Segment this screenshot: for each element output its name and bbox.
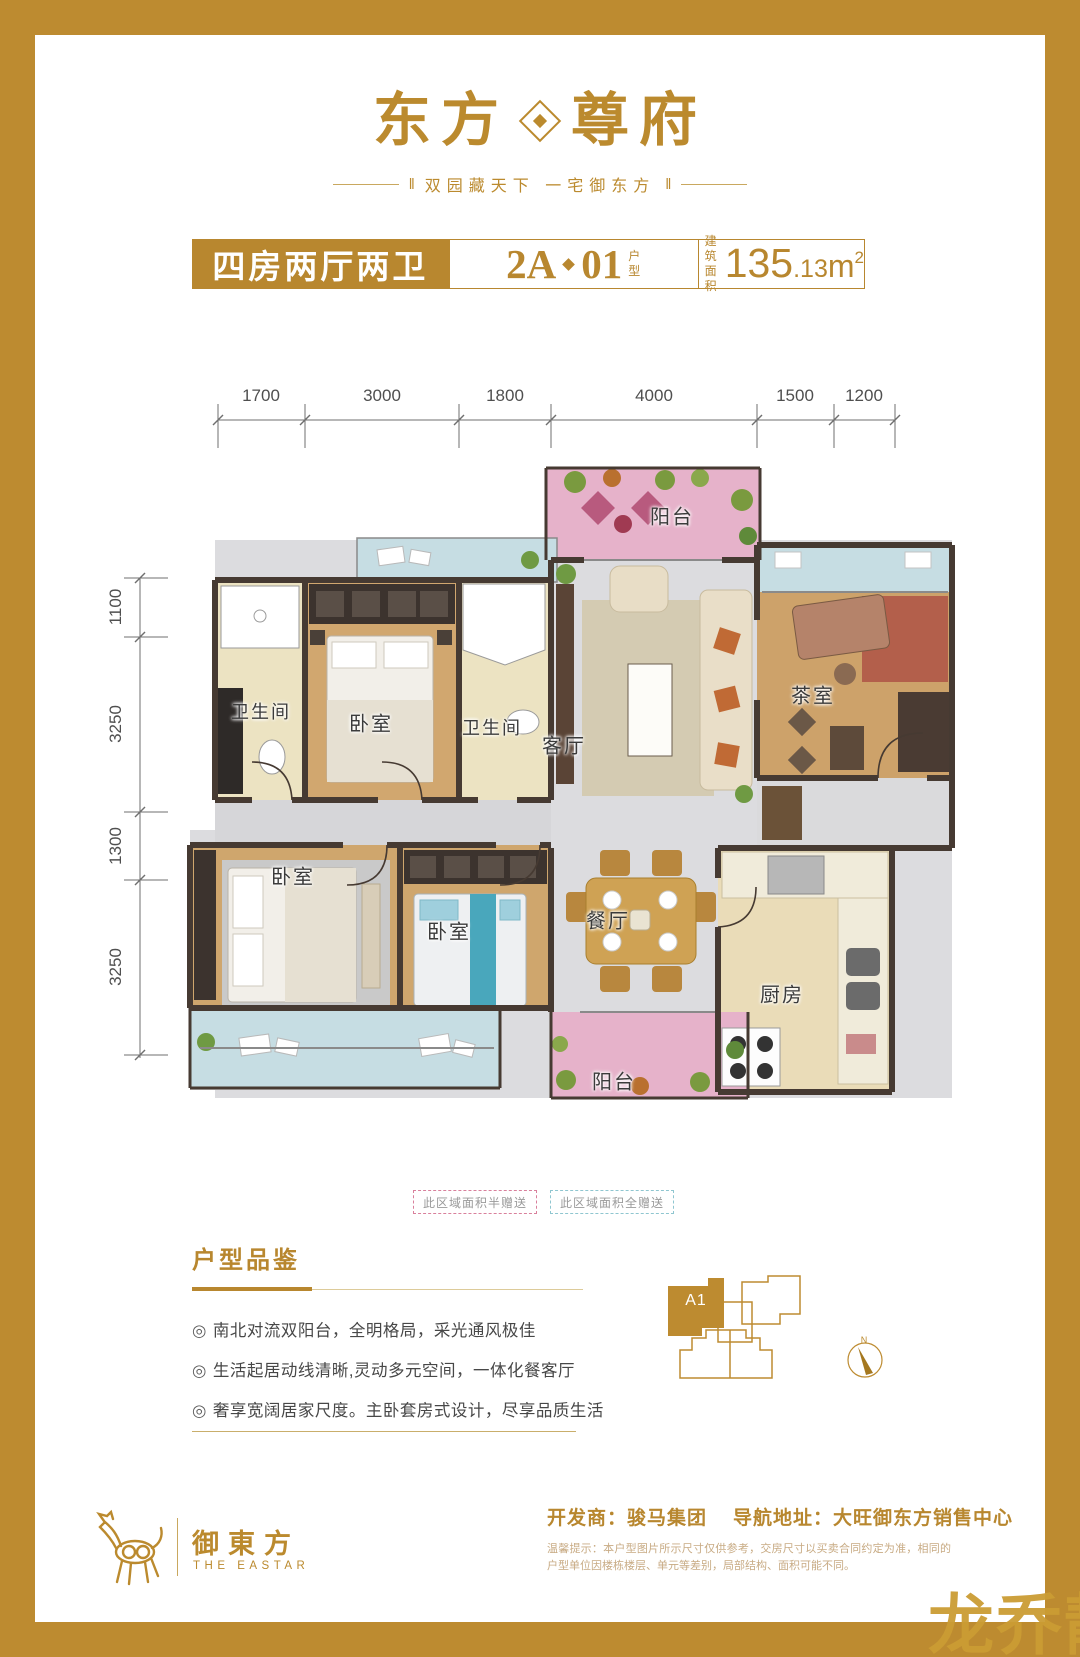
keyplan-unit-tag: A1 [685,1292,707,1310]
watermark: 龙乔靓居 [928,1572,1080,1657]
horse-logo-icon [99,1512,162,1584]
review-section: 户型品鉴 ◎南北对流双阳台，全明格局，采光通风极佳 ◎生活起居动线清晰,灵动多元… [192,1240,582,1431]
dim-top-5: 1500 [776,386,814,406]
footer-logo-cn: 御東方 [192,1522,300,1561]
room-label-kitchen: 厨房 [760,979,804,1008]
tagline-rule-left [333,184,399,185]
brand-logo-left: 东方 [373,92,509,150]
room-label-balcony-north: 阳台 [650,501,694,530]
unit-code-a: 2A [506,244,556,285]
footer-logo-divider [177,1518,178,1576]
room-label-living-room: 客厅 [542,730,586,759]
room-label-bathroom-1: 卫生间 [231,698,291,724]
built-area-value: 135.13m2 [725,243,864,285]
room-label-tea-room: 茶室 [791,680,835,709]
dim-top-4: 4000 [635,386,673,406]
review-bullet-1: ◎南北对流双阳台，全明格局，采光通风极佳 [192,1311,582,1351]
review-heading: 户型品鉴 [192,1240,582,1275]
brand-logo-right: 尊府 [571,92,707,150]
footer-logo-en: THE EASTAR [193,1560,309,1572]
dim-left-2: 3250 [106,705,126,743]
room-label-bathroom-2: 卫生间 [462,714,522,740]
built-area: 建筑 面积 135.13m2 [698,240,864,288]
room-label-balcony-south: 阳台 [592,1066,636,1095]
tagline-bars-left: ‖ [409,176,415,193]
developer-text: 开发商：骏马集团 [547,1508,707,1529]
dim-left-3: 1300 [106,827,126,865]
legend-half-gift: 此区域面积半赠送 [413,1190,537,1214]
dim-left-1: 1100 [106,589,126,626]
footer-developer-line: 开发商：骏马集团导航地址：大旺御东方销售中心 [547,1503,1013,1530]
review-bullet-3: ◎奢享宽阔居家尺度。主卧套房式设计，尽享品质生活 [192,1391,582,1431]
room-label-bedroom-1: 卧室 [349,708,393,737]
diamond-separator-icon [562,258,575,271]
unit-title-bar: 四房两厅两卫 2A 01 户 型 建筑 面积 135.13m2 [192,239,865,289]
brand-logo: 东方 尊府 [0,92,1080,150]
unit-code: 2A 01 户 型 [450,240,698,288]
room-count-badge: 四房两厅两卫 [192,239,449,289]
room-label-bedroom-2: 卧室 [271,861,315,890]
review-bullets: ◎南北对流双阳台，全明格局，采光通风极佳 ◎生活起居动线清晰,灵动多元空间，一体… [192,1311,582,1431]
review-end-rule [192,1431,576,1432]
unit-code-b: 01 [581,244,622,285]
footer-disclaimer: 温馨提示：本户型图片所示尺寸仅供参考，交房尺寸以买卖合同约定为准，相同的户型单位… [547,1541,951,1575]
brand-tagline: ‖ 双园藏天下 一宅御东方 ‖ [0,172,1080,196]
built-area-prefix: 建筑 面积 [705,234,718,294]
address-text: 导航地址：大旺御东方销售中心 [733,1508,1013,1529]
tagline-rule-right [681,184,747,185]
dim-top-1: 1700 [242,386,280,406]
dim-top-3: 1800 [486,386,524,406]
room-label-dining-room: 餐厅 [586,905,630,934]
dim-top-6: 1200 [845,386,883,406]
legend-full-gift: 此区域面积全赠送 [550,1190,674,1214]
tagline-text: 双园藏天下 一宅御东方 [425,172,655,196]
review-bullet-2: ◎生活起居动线清晰,灵动多元空间，一体化餐客厅 [192,1351,582,1391]
room-label-bedroom-3: 卧室 [427,916,471,945]
review-underline [192,1287,582,1291]
compass-north-label: N [861,1335,868,1345]
brand-seal-icon [519,100,561,142]
dim-top-2: 3000 [363,386,401,406]
floorplan-poster: 东方 尊府 ‖ 双园藏天下 一宅御东方 ‖ 四房两厅两卫 2A 01 户 型 建 [0,0,1080,1657]
unit-suffix: 户 型 [628,249,641,279]
tagline-bars-right: ‖ [665,176,671,193]
dim-left-4: 3250 [106,948,126,986]
